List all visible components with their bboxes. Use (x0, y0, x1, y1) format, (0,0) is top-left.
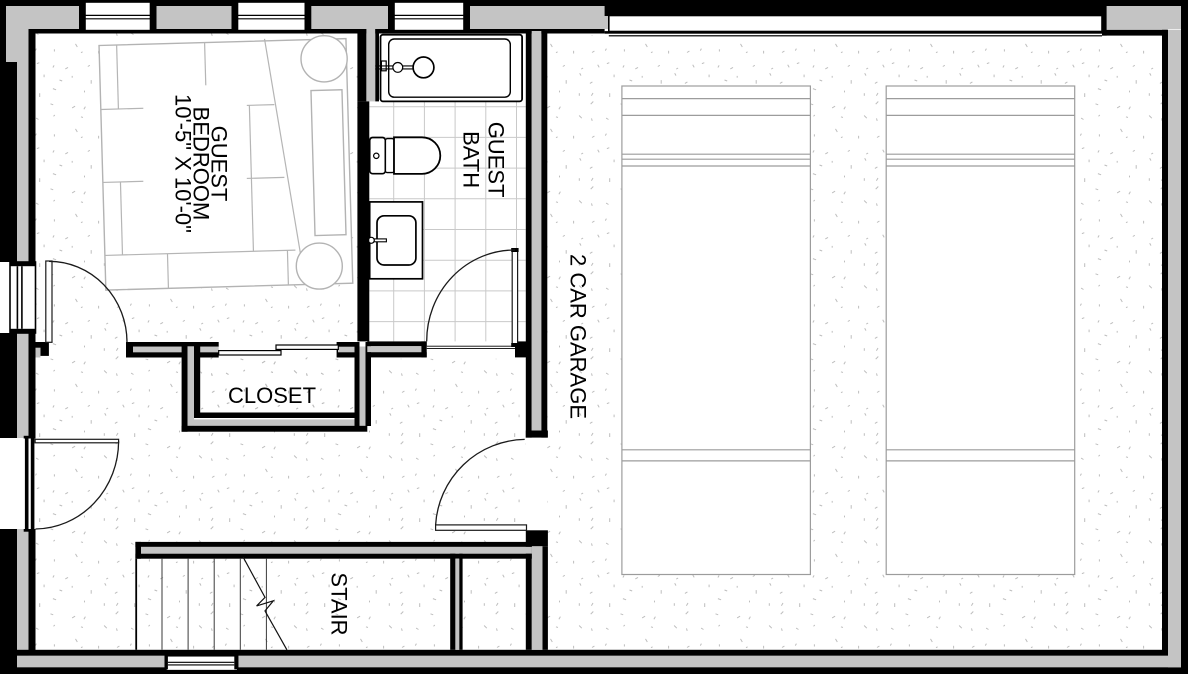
svg-text:STAIR: STAIR (327, 572, 352, 635)
svg-text:CLOSET: CLOSET (228, 383, 316, 408)
svg-text:10'-5" X 10'-0": 10'-5" X 10'-0" (171, 94, 196, 233)
svg-text:BATH: BATH (458, 131, 483, 188)
svg-text:GUEST: GUEST (484, 122, 509, 198)
svg-text:2 CAR GARAGE: 2 CAR GARAGE (566, 254, 591, 419)
